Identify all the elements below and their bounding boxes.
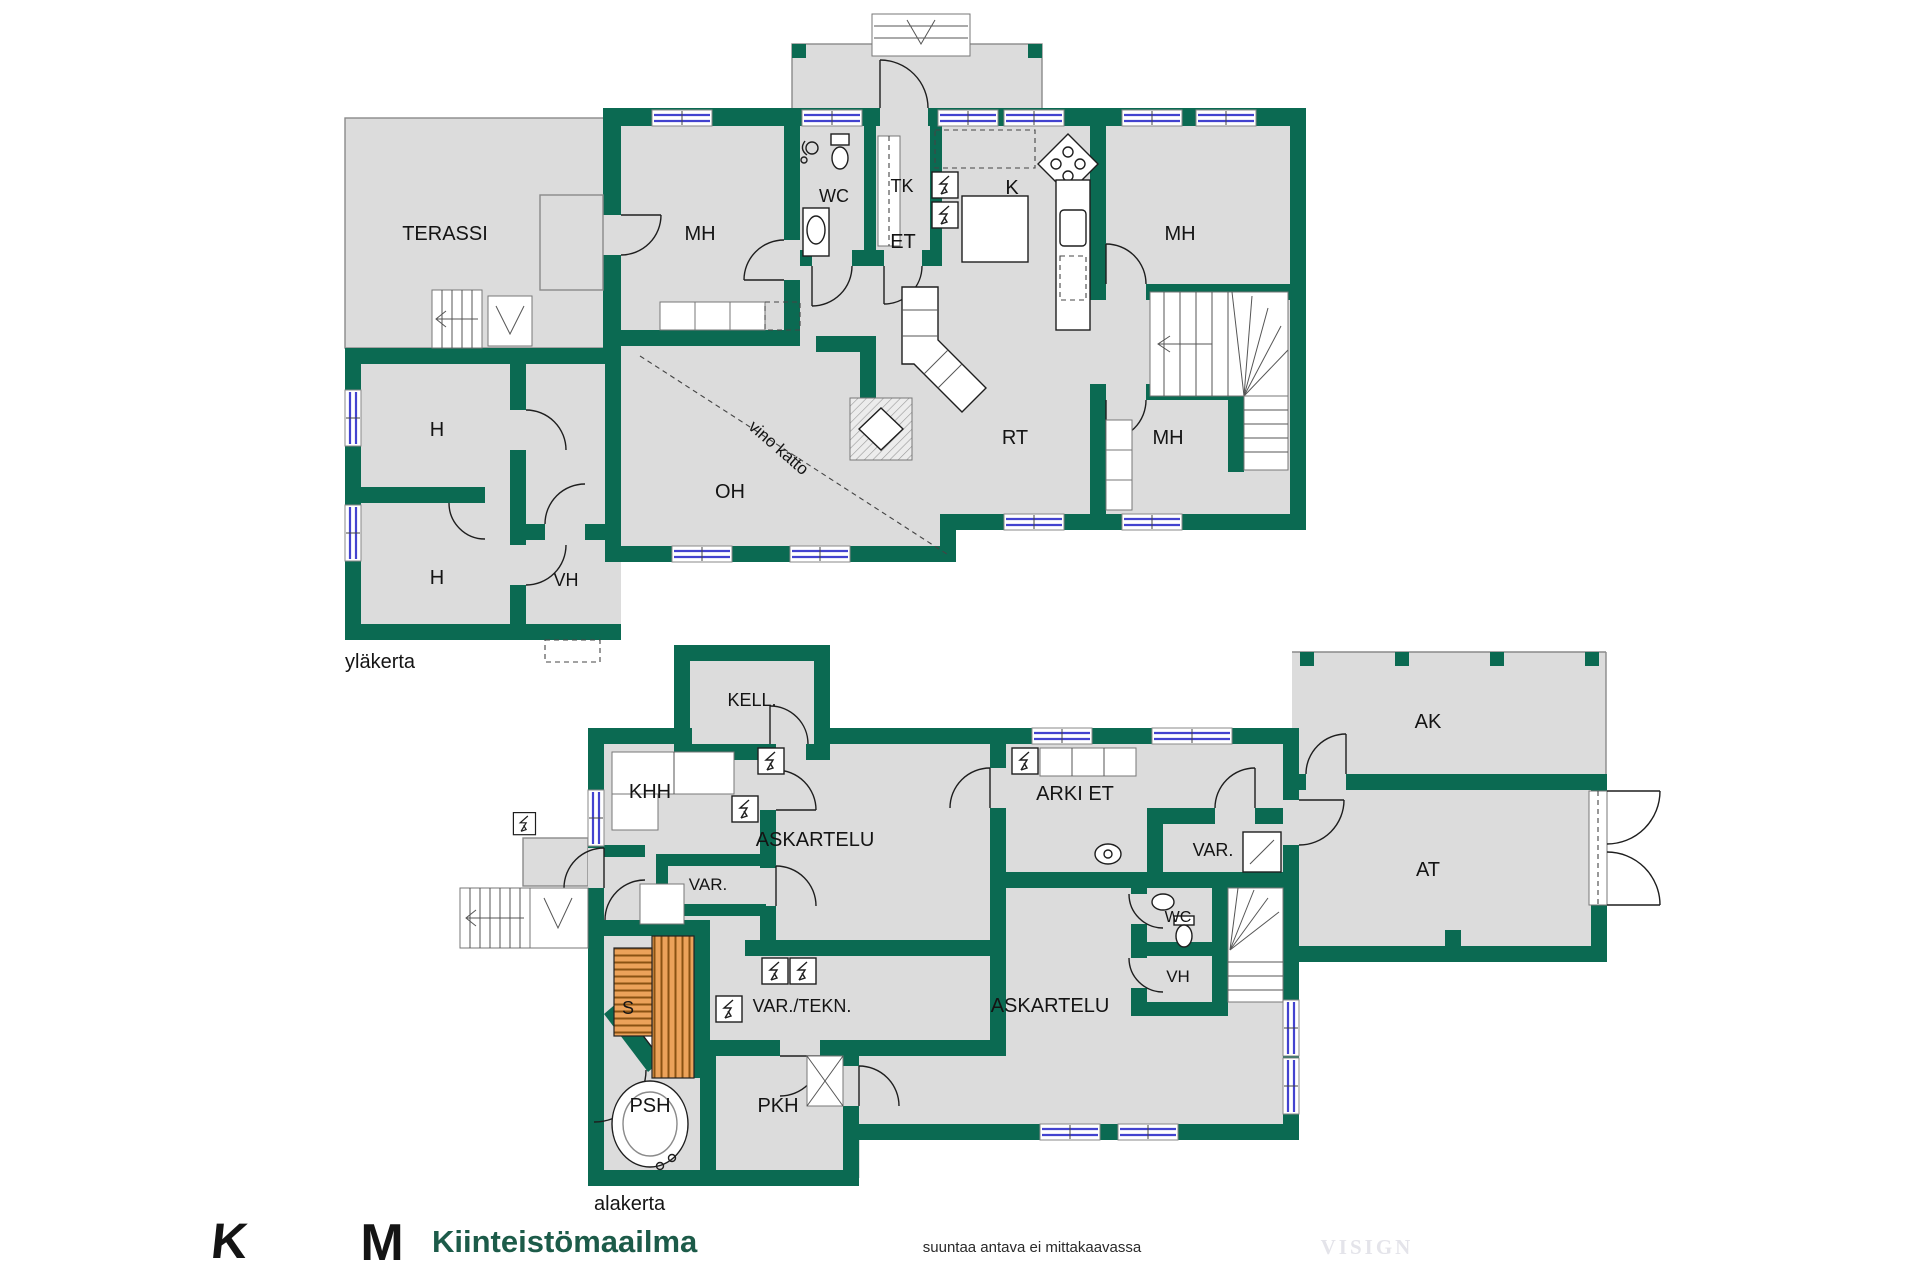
room-label-kell: KELL.	[727, 690, 776, 710]
room-label-et: ET	[890, 231, 916, 253]
room-label-at: AT	[1416, 859, 1440, 881]
floor-caption-lower: alakerta	[594, 1193, 666, 1215]
room-label-mh3: MH	[1152, 427, 1183, 449]
room-label-h1: H	[430, 419, 444, 441]
floorplan-canvas: TERASSI MH WC TK K ET MH RT MH OH H H VH…	[0, 0, 1920, 1280]
room-label-pkh: PKH	[757, 1095, 798, 1117]
logo-letter-m: M	[360, 1214, 403, 1272]
km-logo: M K Kiinteistömaailma	[209, 1213, 698, 1272]
room-label-khh: KHH	[629, 781, 671, 803]
room-label-arki-et: ARKI ET	[1036, 783, 1114, 805]
room-label-vh: VH	[553, 570, 578, 590]
room-label-oh: OH	[715, 481, 745, 503]
room-label-var-left: VAR.	[689, 875, 727, 894]
logo-letter-k: K	[209, 1213, 251, 1269]
room-label-s: S	[622, 998, 634, 1018]
lower-staircase	[1228, 888, 1283, 1002]
room-label-wc: WC	[819, 186, 849, 206]
room-label-h2: H	[430, 567, 444, 589]
room-label-askartelu2: ASKARTELU	[991, 995, 1110, 1017]
room-label-vh2: VH	[1166, 967, 1190, 986]
room-label-mh1: MH	[684, 223, 715, 245]
sauna-bench	[652, 936, 694, 1078]
footer: M K Kiinteistömaailma suuntaa antava ei …	[209, 1213, 1414, 1272]
washbasin-icon	[1152, 894, 1174, 910]
carport-floor	[1292, 652, 1606, 774]
floorplan-document: TERASSI MH WC TK K ET MH RT MH OH H H VH…	[0, 0, 1920, 1280]
room-label-var-right: VAR.	[1193, 840, 1234, 860]
room-label-mh2: MH	[1164, 223, 1195, 245]
kitchen-island	[962, 196, 1028, 262]
brand-name: Kiinteistömaailma	[432, 1224, 698, 1259]
side-porch	[523, 838, 588, 886]
upper-floor-plan: TERASSI MH WC TK K ET MH RT MH OH H H VH…	[345, 14, 1306, 673]
sauna-bench	[614, 948, 652, 1036]
washbasin-icon	[1095, 844, 1121, 864]
floor-caption-upper: yläkerta	[345, 651, 416, 673]
kitchen-counter	[1056, 180, 1090, 330]
room-label-rt: RT	[1002, 427, 1028, 449]
room-label-ak: AK	[1415, 711, 1442, 733]
watermark-text: VISIGN	[1321, 1235, 1414, 1259]
garage-floor	[1291, 782, 1599, 954]
room-label-askartelu1: ASKARTELU	[756, 829, 875, 851]
lower-floor-plan: KELL. KHH ASKARTELU ARKI ET VAR. AK AT V…	[460, 645, 1660, 1215]
disclaimer-text: suuntaa antava ei mittakaavassa	[923, 1239, 1142, 1256]
room-label-psh: PSH	[629, 1095, 670, 1117]
washer-icon	[640, 884, 684, 924]
toilet-icon	[831, 134, 849, 145]
room-label-wc2: WC	[1165, 909, 1192, 926]
room-label-terassi: TERASSI	[402, 223, 488, 245]
room-label-var-tekn: VAR./TEKN.	[753, 996, 852, 1016]
outdoor-stairs	[460, 888, 588, 948]
room-label-tk: TK	[890, 176, 913, 196]
room-label-k: K	[1005, 177, 1019, 199]
